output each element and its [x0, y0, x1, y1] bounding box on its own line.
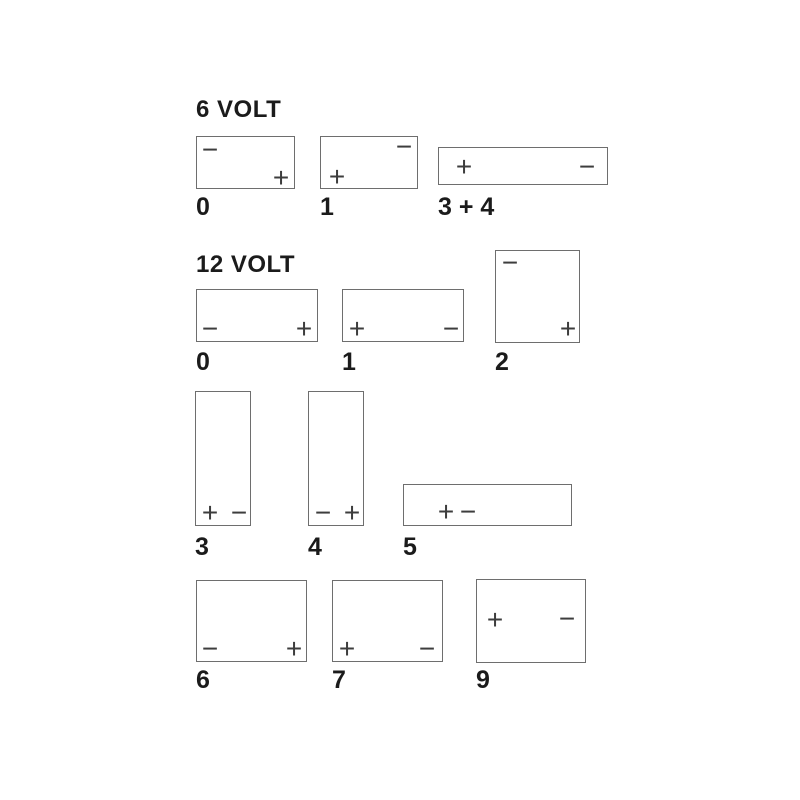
minus-terminal-icon: − — [559, 605, 575, 633]
plus-terminal-icon: + — [329, 163, 345, 191]
battery-box-9: +− — [476, 579, 586, 663]
layout-label: 3 — [195, 535, 209, 560]
plus-terminal-icon: + — [438, 498, 454, 526]
layout-label: 9 — [476, 668, 490, 693]
battery-box-5: +− — [403, 484, 572, 526]
battery-box-4: −+ — [308, 391, 364, 526]
minus-terminal-icon: − — [315, 499, 331, 527]
battery-box-6: −+ — [196, 580, 307, 662]
minus-terminal-icon: − — [202, 315, 218, 343]
layout-label: 6 — [196, 668, 210, 693]
battery-box-1: +− — [342, 289, 464, 342]
plus-terminal-icon: + — [202, 499, 218, 527]
layout-label: 7 — [332, 668, 346, 693]
battery-box-1: +− — [320, 136, 418, 189]
plus-terminal-icon: + — [344, 499, 360, 527]
layout-label: 5 — [403, 535, 417, 560]
plus-terminal-icon: + — [456, 153, 472, 181]
layout-label: 3 + 4 — [438, 195, 494, 220]
battery-box-3+4: +− — [438, 147, 608, 185]
plus-terminal-icon: + — [286, 635, 302, 663]
plus-terminal-icon: + — [273, 164, 289, 192]
section-heading-6-volt: 6 VOLT — [196, 98, 281, 122]
minus-terminal-icon: − — [202, 136, 218, 164]
battery-box-0: −+ — [196, 136, 295, 189]
section-heading-12-volt: 12 VOLT — [196, 253, 295, 277]
minus-terminal-icon: − — [419, 635, 435, 663]
battery-box-3: +− — [195, 391, 251, 526]
plus-terminal-icon: + — [296, 315, 312, 343]
layout-label: 0 — [196, 195, 210, 220]
plus-terminal-icon: + — [339, 635, 355, 663]
layout-label: 2 — [495, 350, 509, 375]
minus-terminal-icon: − — [443, 315, 459, 343]
minus-terminal-icon: − — [396, 133, 412, 161]
minus-terminal-icon: − — [231, 499, 247, 527]
plus-terminal-icon: + — [487, 606, 503, 634]
plus-terminal-icon: + — [349, 315, 365, 343]
layout-label: 4 — [308, 535, 322, 560]
minus-terminal-icon: − — [202, 635, 218, 663]
layout-label: 1 — [342, 350, 356, 375]
minus-terminal-icon: − — [579, 153, 595, 181]
layout-label: 1 — [320, 195, 334, 220]
battery-box-0: −+ — [196, 289, 318, 342]
battery-layout-diagram: 6 VOLT−+0+−1+−3 + 412 VOLT−+0+−1−+2+−3−+… — [0, 0, 800, 800]
layout-label: 0 — [196, 350, 210, 375]
battery-box-2: −+ — [495, 250, 580, 343]
plus-terminal-icon: + — [560, 315, 576, 343]
minus-terminal-icon: − — [460, 498, 476, 526]
minus-terminal-icon: − — [502, 249, 518, 277]
battery-box-7: +− — [332, 580, 443, 662]
